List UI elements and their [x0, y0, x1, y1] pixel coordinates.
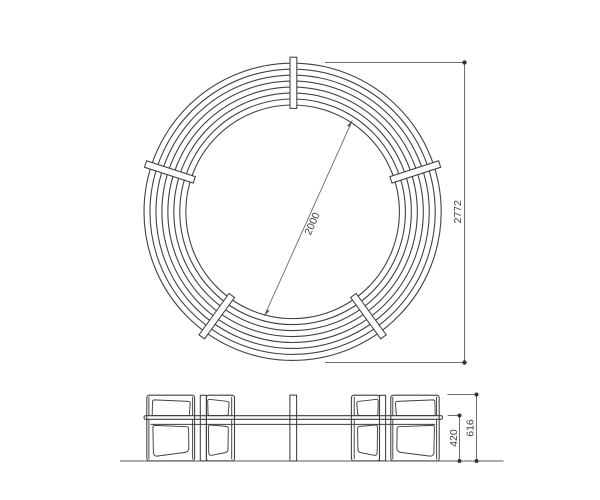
svg-text:2000: 2000 [302, 211, 323, 237]
svg-text:616: 616 [464, 419, 476, 437]
svg-text:2772: 2772 [452, 200, 464, 224]
svg-text:420: 420 [448, 429, 460, 447]
